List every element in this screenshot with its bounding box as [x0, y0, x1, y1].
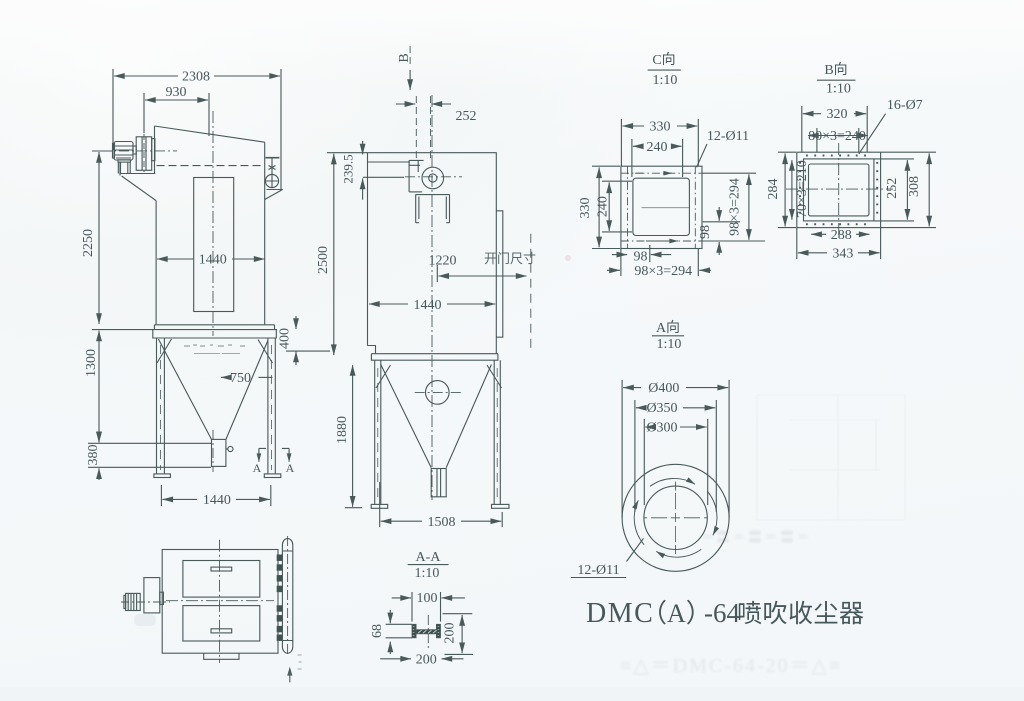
svg-text:200: 200 [416, 652, 437, 667]
svg-text:开门尺寸: 开门尺寸 [484, 251, 536, 266]
svg-text:B向: B向 [824, 62, 847, 78]
svg-text:70×3=210: 70×3=210 [795, 160, 810, 218]
svg-text:750: 750 [230, 371, 251, 386]
svg-text:930: 930 [166, 85, 187, 100]
svg-text:320: 320 [827, 107, 848, 122]
svg-text:A: A [253, 461, 262, 475]
svg-text:1300: 1300 [84, 349, 99, 377]
svg-text:-64: -64 [704, 598, 740, 628]
svg-text:330: 330 [578, 198, 593, 219]
svg-text:1:10: 1:10 [657, 337, 682, 352]
svg-text:98: 98 [698, 225, 713, 239]
svg-text:12-Ø11: 12-Ø11 [707, 129, 749, 144]
svg-text:A: A [286, 461, 295, 475]
svg-text:1440: 1440 [199, 253, 227, 268]
svg-text:12-Ø11: 12-Ø11 [577, 563, 619, 578]
svg-text:2500: 2500 [316, 246, 331, 274]
svg-text:16-Ø7: 16-Ø7 [887, 98, 923, 113]
svg-text:A-A: A-A [416, 550, 442, 565]
svg-text:1880: 1880 [335, 416, 350, 444]
svg-text:1440: 1440 [203, 493, 231, 508]
svg-text:≡△＝DMC-64-20＝△≡: ≡△＝DMC-64-20＝△≡ [620, 655, 842, 677]
svg-text:1:10: 1:10 [415, 566, 440, 581]
svg-text:1220: 1220 [429, 254, 457, 269]
svg-text:Ø400: Ø400 [648, 381, 679, 396]
svg-text:2250: 2250 [81, 229, 96, 257]
svg-text:A向: A向 [656, 320, 680, 336]
svg-text:284: 284 [766, 179, 781, 200]
svg-text:288: 288 [831, 228, 852, 243]
svg-text:68: 68 [370, 624, 385, 638]
svg-text:200: 200 [443, 623, 458, 644]
svg-text:252: 252 [456, 109, 477, 124]
svg-text:400: 400 [278, 328, 293, 349]
svg-text:98×3=294: 98×3=294 [634, 264, 692, 279]
svg-text:C向: C向 [652, 52, 675, 68]
svg-text:＝〓＝〓＝〓＝: ＝〓＝〓＝〓＝ [700, 531, 812, 546]
svg-text:343: 343 [832, 246, 853, 261]
svg-text:252: 252 [885, 178, 900, 199]
svg-text:1508: 1508 [428, 515, 456, 530]
svg-text:380: 380 [86, 445, 101, 466]
svg-text:100: 100 [417, 591, 438, 606]
svg-text:2308: 2308 [182, 70, 210, 85]
svg-text:1:10: 1:10 [826, 82, 851, 97]
svg-text:Ø350: Ø350 [646, 401, 677, 416]
svg-text:1:10: 1:10 [653, 73, 678, 88]
svg-text:98×3=294: 98×3=294 [728, 178, 743, 236]
svg-text:240: 240 [596, 196, 611, 217]
svg-text:330: 330 [650, 120, 671, 135]
svg-text:喷吹收尘器: 喷吹收尘器 [737, 600, 865, 628]
svg-text:308: 308 [907, 176, 922, 197]
svg-text:（A）: （A） [641, 599, 712, 628]
svg-text:239.5: 239.5 [341, 154, 356, 183]
svg-text:240: 240 [647, 140, 668, 155]
svg-text:1440: 1440 [414, 298, 442, 313]
svg-text:98: 98 [634, 250, 648, 265]
svg-text:Ø300: Ø300 [646, 420, 677, 435]
